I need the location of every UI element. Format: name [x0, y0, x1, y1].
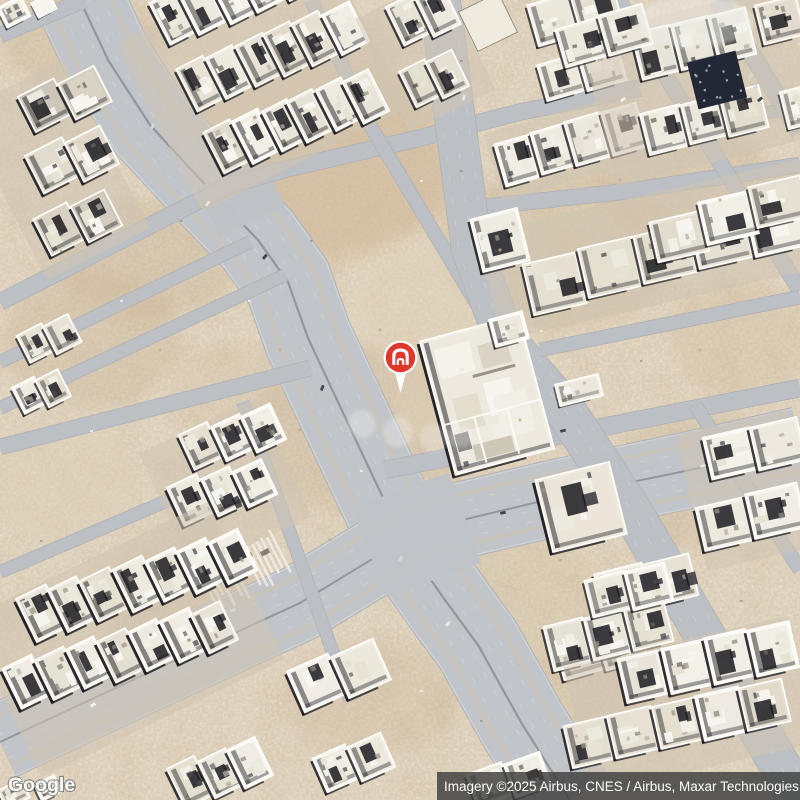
svg-text:Google: Google	[8, 774, 75, 796]
svg-text:Imagery ©2025 Airbus, CNES / A: Imagery ©2025 Airbus, CNES / Airbus, Max…	[444, 779, 799, 794]
